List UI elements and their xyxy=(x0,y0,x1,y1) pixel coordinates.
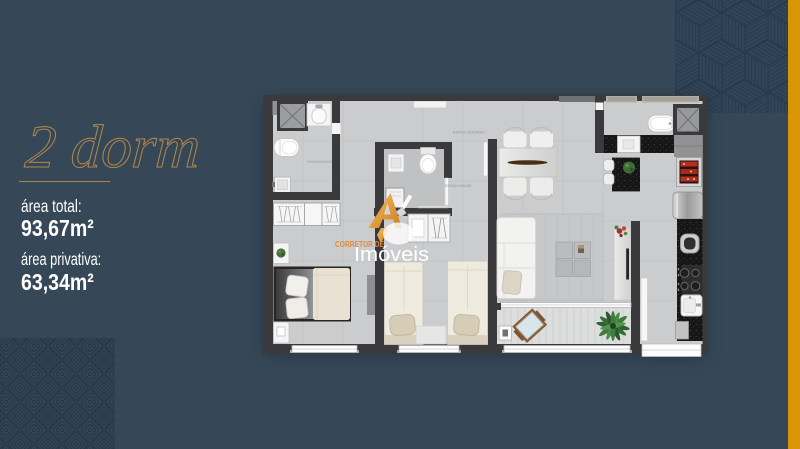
svg-text:ESPAÇO SAÚDE: ESPAÇO SAÚDE xyxy=(445,183,472,188)
svg-text:ESPAÇO GOURMET: ESPAÇO GOURMET xyxy=(453,131,485,135)
svg-text:Imóveis: Imóveis xyxy=(354,244,429,266)
